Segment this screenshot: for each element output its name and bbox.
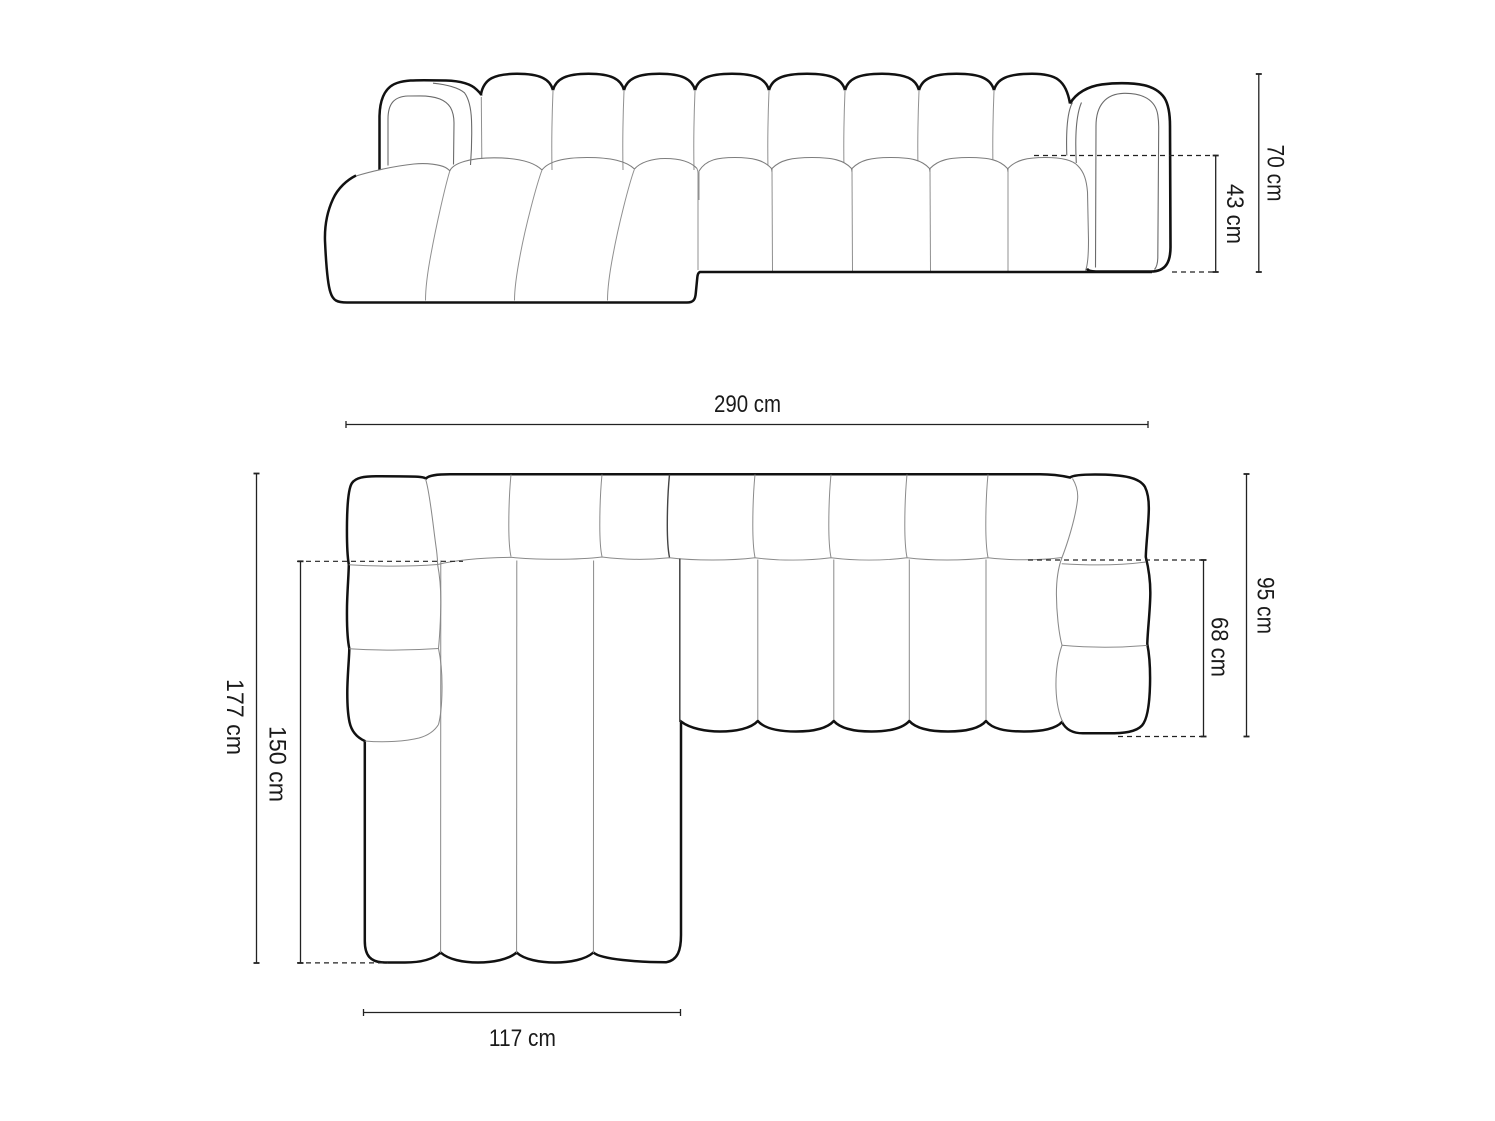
svg-text:177 cm: 177 cm bbox=[221, 679, 248, 755]
svg-text:150 cm: 150 cm bbox=[264, 726, 291, 802]
svg-text:290 cm: 290 cm bbox=[714, 391, 781, 418]
svg-text:117 cm: 117 cm bbox=[489, 1025, 556, 1052]
svg-text:43 cm: 43 cm bbox=[1221, 184, 1248, 244]
svg-text:95 cm: 95 cm bbox=[1251, 577, 1278, 634]
svg-text:68 cm: 68 cm bbox=[1205, 617, 1232, 677]
svg-text:70 cm: 70 cm bbox=[1262, 145, 1289, 202]
